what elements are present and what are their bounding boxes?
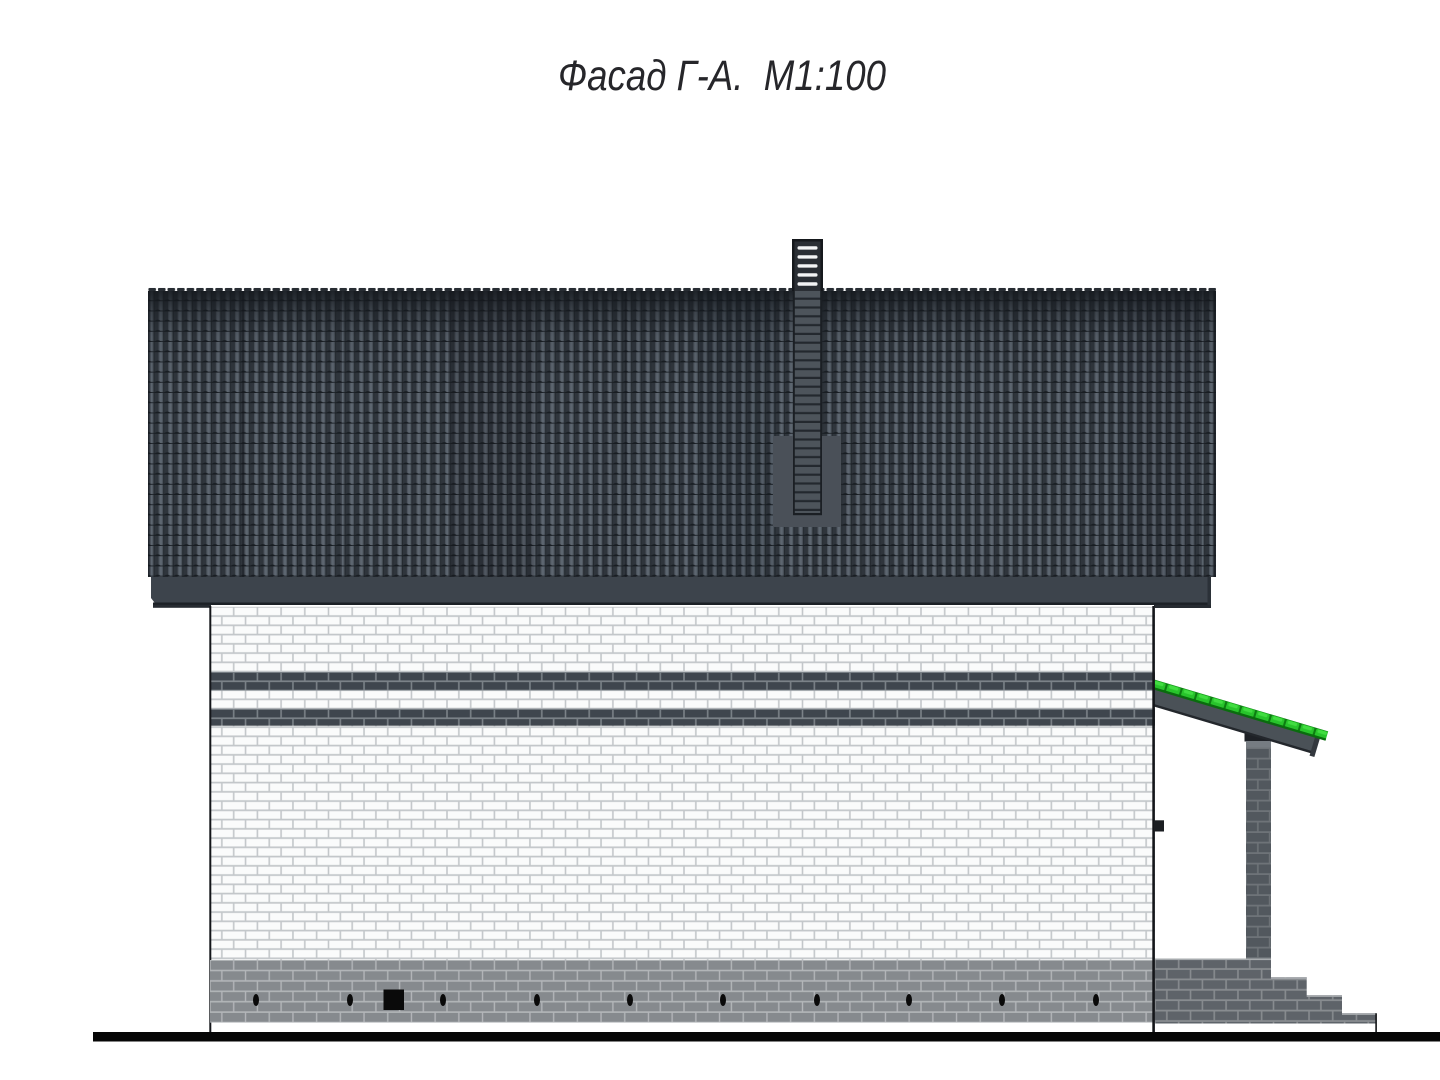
svg-text:Фасад Г-А. М1:100: Фасад Г-А. М1:100 (558, 52, 886, 100)
